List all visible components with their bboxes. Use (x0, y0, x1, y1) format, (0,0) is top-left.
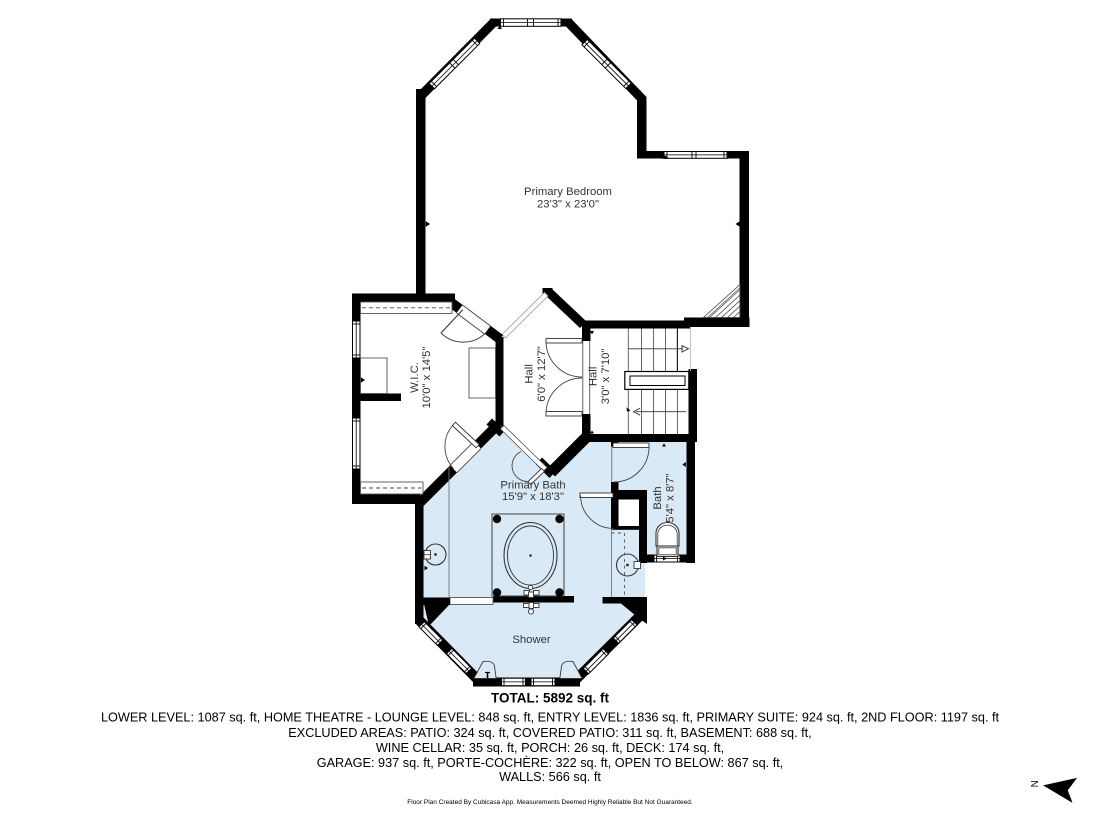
svg-text:Primary Bedroom: Primary Bedroom (524, 186, 612, 198)
svg-text:Shower: Shower (512, 634, 551, 646)
svg-text:EXCLUDED AREAS: PATIO: 324 sq.: EXCLUDED AREAS: PATIO: 324 sq. ft, COVER… (288, 726, 811, 740)
svg-text:TOTAL: 5892 sq. ft: TOTAL: 5892 sq. ft (491, 691, 610, 706)
svg-text:Hall3'0" x 7'10": Hall3'0" x 7'10" (588, 349, 612, 405)
svg-text:15'9" x 18'3": 15'9" x 18'3" (502, 491, 564, 503)
svg-text:W.I.C.10'0" x 14'5": W.I.C.10'0" x 14'5" (409, 347, 433, 409)
svg-text:LOWER LEVEL: 1087 sq. ft, HOME: LOWER LEVEL: 1087 sq. ft, HOME THEATRE -… (101, 711, 1000, 725)
svg-text:WINE CELLAR: 35 sq. ft, PORCH:: WINE CELLAR: 35 sq. ft, PORCH: 26 sq. ft… (376, 741, 724, 755)
svg-text:Primary Bath: Primary Bath (500, 480, 565, 492)
svg-text:GARAGE: 937 sq. ft, PORTE-COCH: GARAGE: 937 sq. ft, PORTE-COCHÈRE: 322 s… (317, 755, 784, 770)
svg-text:Floor Plan Created By Cubicasa: Floor Plan Created By Cubicasa App. Meas… (407, 799, 693, 806)
svg-text:WALLS: 566 sq. ft: WALLS: 566 sq. ft (499, 770, 601, 784)
svg-text:23'3" x 23'0": 23'3" x 23'0" (537, 199, 599, 211)
svg-text:Hall6'0" x 12'7": Hall6'0" x 12'7" (524, 346, 548, 402)
svg-text:N: N (1030, 780, 1041, 787)
